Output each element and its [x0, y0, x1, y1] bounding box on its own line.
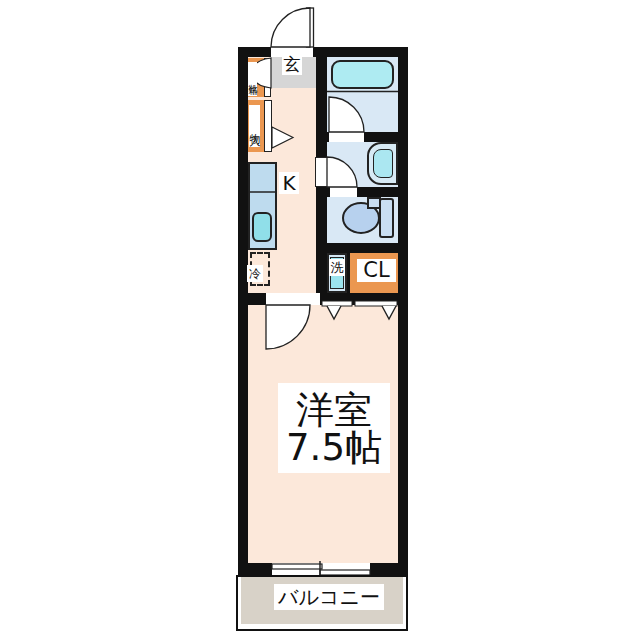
- mainroom-door-arc: [266, 305, 310, 349]
- toilet-tank: [380, 199, 393, 237]
- storage-label: 物入: [249, 105, 260, 147]
- sliding-window-pane-left: [272, 564, 322, 569]
- main-room-name: 洋室: [296, 391, 372, 429]
- washer-label: 洗: [329, 259, 345, 276]
- closet-door-rail-right: [355, 301, 397, 306]
- linework-overlay: [0, 0, 640, 640]
- toilet-cistern-box: [368, 198, 380, 208]
- main-room-size: 7.5帖: [286, 429, 382, 466]
- floor-plan: 玄 靴箱 物入 K 冷 洗 CL 洋室 7.5帖 バルコニー: [0, 0, 640, 640]
- closet-door-rail-left: [322, 301, 352, 306]
- entrance-door-arc: [271, 8, 310, 47]
- closet-label: CL: [357, 259, 396, 282]
- shoe-box-label: 靴箱: [248, 62, 257, 96]
- balcony-label: バルコニー: [274, 584, 384, 610]
- bathroom-door-arc: [329, 97, 364, 132]
- closet-door-swing-right: [382, 306, 396, 319]
- refrigerator-label: 冷: [247, 265, 263, 282]
- kitchen-label: K: [279, 172, 299, 194]
- main-room-label: 洋室 7.5帖: [278, 383, 390, 473]
- closet-door-swing-left: [327, 306, 341, 319]
- entrance-label: 玄: [282, 53, 302, 75]
- storage-door-swing: [272, 127, 293, 148]
- washroom-door-arc: [327, 157, 357, 187]
